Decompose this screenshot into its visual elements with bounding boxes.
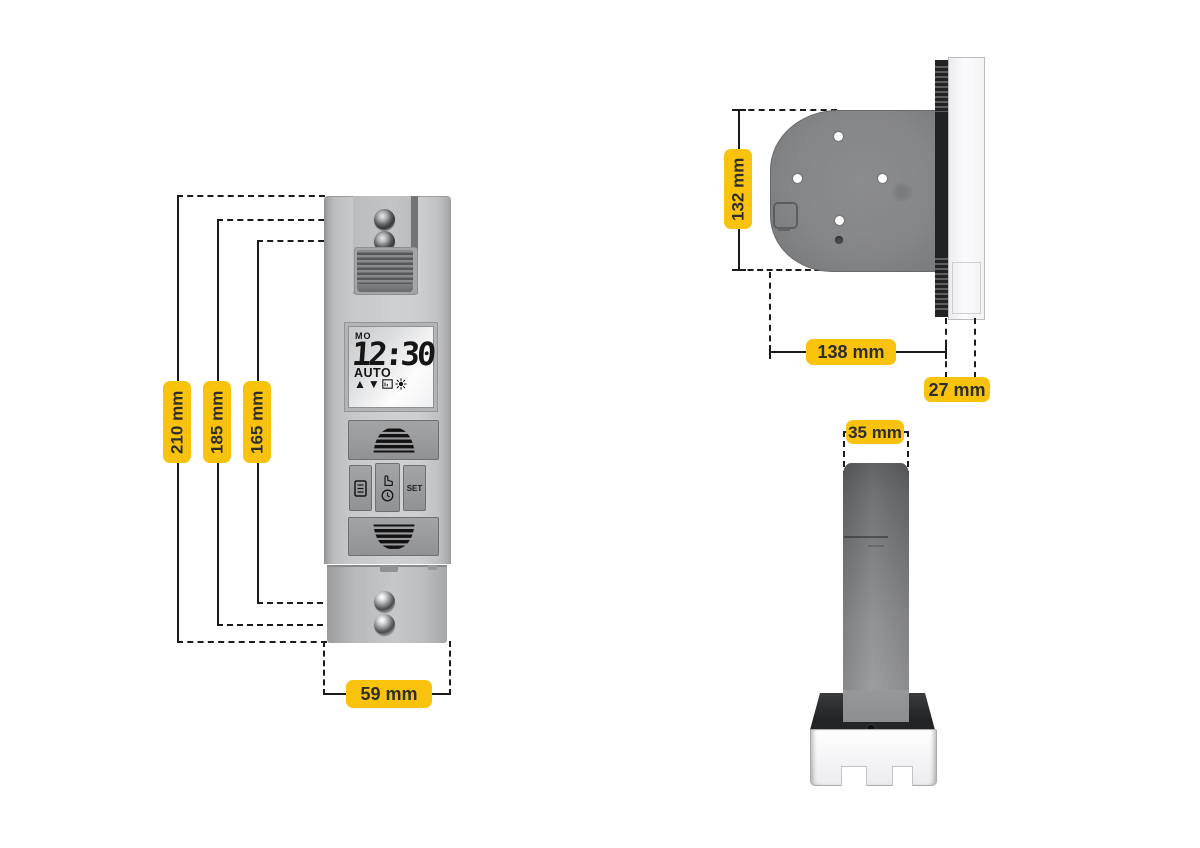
column-seam-mark <box>868 545 884 547</box>
belt-webbing <box>357 250 413 284</box>
clock-icon <box>381 489 394 502</box>
dim-label-132: 132 mm <box>724 149 752 229</box>
dim-59-ext-left <box>323 641 325 695</box>
dim-label-165: 165 mm <box>243 381 271 463</box>
menu-icon <box>354 480 367 497</box>
dimension-diagram: 210 mm 185 mm 165 mm 59 mm MO 12:30 AUTO… <box>0 0 1200 848</box>
column-seam-line <box>844 536 888 538</box>
dim-27-ext-right <box>974 318 976 378</box>
dim-label-59: 59 mm <box>346 680 432 708</box>
set-button: SET <box>403 465 426 511</box>
manual-timer-button <box>375 463 400 512</box>
side-hole-4 <box>835 216 844 225</box>
device-profile-column-foot <box>843 690 909 722</box>
shutter-up-button <box>348 420 439 460</box>
panel-inner-detail <box>952 262 981 314</box>
base-notch-right <box>892 766 913 786</box>
side-recess-circle <box>891 181 913 203</box>
bracket-tab-small <box>428 565 437 570</box>
dim-138-ext-left <box>769 272 771 352</box>
set-button-label: SET <box>407 484 423 493</box>
front-bottom-screw-2 <box>374 614 395 635</box>
front-bottom-screw-1 <box>374 591 395 612</box>
menu-button <box>349 465 372 511</box>
base-notch-left <box>841 766 867 786</box>
dim-label-138: 138 mm <box>806 339 896 365</box>
dim-138-tick-left <box>769 345 771 359</box>
sun-icon <box>395 378 407 390</box>
dim-59-ext-right <box>449 641 451 695</box>
dim-210-ext-bottom <box>177 641 327 643</box>
panel-vents-bottom <box>935 255 948 313</box>
dim-210-ext-top <box>177 195 325 197</box>
device-side-housing <box>770 110 939 272</box>
front-top-screw-hole-1 <box>374 209 395 230</box>
belt-lip <box>357 284 413 292</box>
side-latch-detail <box>773 202 798 229</box>
dim-label-35: 35 mm <box>846 420 904 444</box>
lcd-status-icons: ▲ ▼ <box>354 377 407 391</box>
column-shading <box>843 463 909 725</box>
down-triangle-icon: ▼ <box>368 377 380 391</box>
side-hole-2 <box>793 174 802 183</box>
base-white-face <box>810 729 937 786</box>
shutter-up-icon <box>371 427 417 453</box>
panel-vents-top <box>935 63 948 112</box>
shutter-down-button <box>348 517 439 556</box>
lcd-display: MO 12:30 AUTO ▲ ▼ <box>348 326 434 408</box>
dim-label-210: 210 mm <box>163 381 191 463</box>
bracket-tab <box>380 565 398 572</box>
side-hole-small <box>835 236 843 244</box>
dim-138-tick-right <box>945 345 947 359</box>
dim-label-27: 27 mm <box>924 377 990 402</box>
dim-label-185: 185 mm <box>203 381 231 463</box>
side-hole-3 <box>878 174 887 183</box>
side-latch-mark <box>778 228 790 231</box>
hand-icon <box>381 473 394 486</box>
program-icon <box>382 379 393 389</box>
up-triangle-icon: ▲ <box>354 377 366 391</box>
shutter-down-icon <box>371 524 417 550</box>
side-hole-1 <box>834 132 843 141</box>
